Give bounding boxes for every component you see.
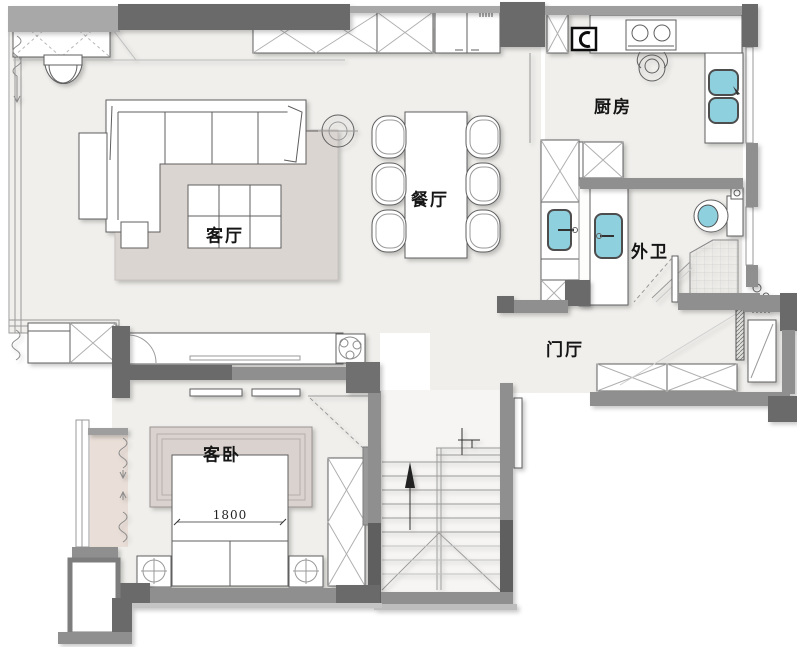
bay-window-floor <box>90 433 128 547</box>
room-label-kitchen: 厨房 <box>594 93 632 118</box>
curtain-pelmet <box>252 389 300 396</box>
side-table-icon <box>79 133 107 219</box>
entry-door-icon <box>736 308 744 360</box>
kitchen-lower-cabinet <box>583 142 623 178</box>
vanity-sink-icon <box>590 188 628 305</box>
curtain-pelmet <box>190 389 242 396</box>
window-bath-right <box>746 207 753 265</box>
pocket-door-leaf <box>514 398 522 468</box>
room-label-bath: 外卫 <box>631 238 669 263</box>
stove-icon <box>626 20 676 50</box>
window-kitchen-right <box>746 47 753 143</box>
shoe-cabinet-icon <box>597 364 737 391</box>
bed-width-dimension: 1800 <box>213 508 248 522</box>
equipment-platform-icon <box>748 320 776 382</box>
room-label-living: 客厅 <box>206 222 244 247</box>
floor-plan: 客厅 餐厅 厨房 外卫 门厅 客卧 1800 <box>0 0 797 647</box>
window-seat-cabinet-icon <box>28 323 116 363</box>
plant-icon <box>336 334 365 363</box>
tv-console-icon <box>128 333 343 364</box>
wash-basin-icon <box>541 202 579 259</box>
room-label-bedroom: 客卧 <box>203 441 241 466</box>
room-label-foyer: 门厅 <box>546 336 584 361</box>
ottoman-icon <box>121 222 148 248</box>
room-label-dining: 餐厅 <box>411 186 449 211</box>
water-heater-icon <box>572 28 596 50</box>
floor-plan-drawing <box>0 0 797 647</box>
wardrobe-icon <box>328 458 365 586</box>
stairs-floor <box>380 390 513 594</box>
